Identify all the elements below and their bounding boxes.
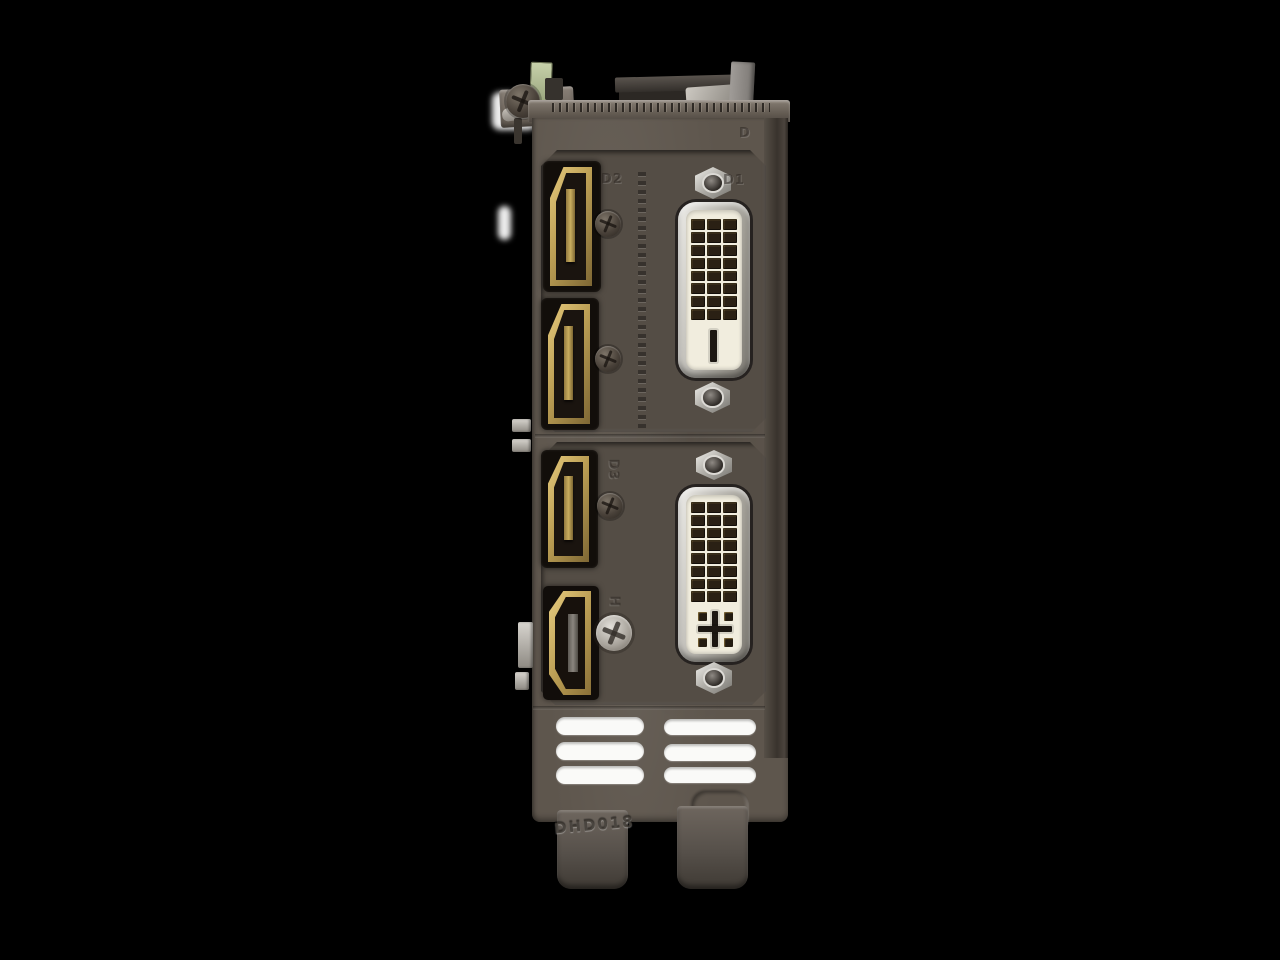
- vent-slot: [556, 766, 644, 784]
- dvi-pin: [691, 515, 705, 526]
- bracket-screw: [595, 346, 621, 372]
- dvi-analog-blade-h: [698, 626, 732, 632]
- dvi-pin: [691, 502, 705, 513]
- panel-seam: [533, 706, 765, 710]
- edge-pin: [512, 419, 531, 432]
- dvi-analog-pin: [698, 612, 707, 621]
- dvi-pin: [723, 528, 737, 539]
- port-label-h: H: [606, 596, 621, 608]
- displayport-tongue: [564, 476, 573, 540]
- displayport-2: [541, 298, 599, 430]
- displayport-3: [541, 450, 598, 568]
- dvi-analog-pin: [698, 638, 707, 647]
- dvi-pin: [723, 296, 737, 307]
- hdmi-port: [543, 586, 599, 700]
- dvi-pin-grid: [691, 219, 737, 320]
- displayport-tongue: [564, 326, 573, 399]
- dvi-analog-pin: [724, 612, 733, 621]
- displayport-connector-shell: [548, 456, 589, 562]
- dvi-pin: [707, 219, 721, 230]
- dvi-pin: [691, 283, 705, 294]
- dvi-pin: [723, 271, 737, 282]
- edge-pin: [512, 439, 531, 452]
- bracket-screw-silver: [596, 615, 632, 651]
- dvi-pin: [723, 283, 737, 294]
- dvi-pin: [707, 245, 721, 256]
- dvi-pin: [707, 258, 721, 269]
- dvi-pin: [691, 271, 705, 282]
- bracket-right-fold: [764, 118, 788, 758]
- dvi-insert: [686, 210, 742, 370]
- dvi-pin: [707, 579, 721, 590]
- dvi-pin: [691, 591, 705, 602]
- displayport-cavity: [554, 462, 583, 556]
- dvi-pin: [723, 553, 737, 564]
- displayport-connector-shell: [550, 167, 592, 286]
- panel-seam: [535, 434, 765, 438]
- dvi-pin: [723, 579, 737, 590]
- dvi-pin: [691, 232, 705, 243]
- bracket-serrations: [552, 103, 770, 112]
- dvi-pin-grid: [691, 502, 737, 602]
- dvi-pin: [691, 553, 705, 564]
- dvi-pin: [691, 579, 705, 590]
- dvi-pin: [707, 296, 721, 307]
- dvi-pin: [707, 515, 721, 526]
- background-fringe: [498, 206, 511, 240]
- dvi-pin: [723, 258, 737, 269]
- dvi-pin: [723, 591, 737, 602]
- dvi-ground-blade: [710, 330, 717, 362]
- dvi-pin: [707, 566, 721, 577]
- displayport-1: [543, 161, 601, 292]
- port-label-d1: D1: [723, 173, 745, 188]
- dvi-pin: [707, 232, 721, 243]
- dvi-pin: [707, 553, 721, 564]
- dvi-pin: [691, 528, 705, 539]
- dvi-pin: [723, 502, 737, 513]
- hdmi-connector-shell: [549, 591, 591, 695]
- hdmi-tongue: [568, 614, 578, 673]
- retention-clip: [545, 78, 563, 100]
- edge-tab: [515, 672, 529, 690]
- dvi-pin: [691, 258, 705, 269]
- dvi-pin: [723, 540, 737, 551]
- dvi-pin: [723, 232, 737, 243]
- dvi-pin: [723, 515, 737, 526]
- vent-slot: [556, 742, 644, 760]
- vent-slot: [664, 719, 756, 735]
- dvi-d-port: [678, 202, 750, 378]
- dvi-pin: [707, 502, 721, 513]
- dvi-pin: [723, 245, 737, 256]
- dvi-pin: [707, 528, 721, 539]
- dvi-insert: [686, 495, 742, 654]
- dvi-pin: [691, 296, 705, 307]
- dvi-analog-pin: [724, 638, 733, 647]
- dvi-pin: [691, 540, 705, 551]
- edge-tab: [518, 622, 533, 668]
- dvi-pin: [723, 219, 737, 230]
- bracket-screw: [595, 211, 621, 237]
- dvi-pin: [691, 309, 705, 320]
- photo-stage: D2 D1 D3 H D DHD018: [0, 0, 1280, 960]
- dvi-pin: [691, 245, 705, 256]
- bracket-screw: [597, 493, 623, 519]
- displayport-tongue: [566, 189, 575, 262]
- dvi-pin: [723, 566, 737, 577]
- dvi-pin: [707, 309, 721, 320]
- dvi-i-port: [678, 487, 750, 662]
- vent-slot: [556, 717, 644, 735]
- hdmi-cavity: [555, 597, 585, 689]
- dvi-pin: [707, 591, 721, 602]
- embossed-dash-column: [638, 172, 646, 428]
- dvi-pin: [707, 271, 721, 282]
- displayport-connector-shell: [548, 304, 590, 424]
- bracket-foot-right: [677, 806, 748, 889]
- screw-shaft: [514, 118, 522, 144]
- dvi-pin: [691, 219, 705, 230]
- vent-slot: [664, 744, 756, 761]
- port-label-d2: D2: [601, 172, 623, 187]
- displayport-cavity: [554, 310, 584, 418]
- dvi-pin: [723, 309, 737, 320]
- dvi-pin: [707, 283, 721, 294]
- vent-slot: [664, 767, 756, 783]
- dvi-pin: [707, 540, 721, 551]
- displayport-cavity: [556, 173, 586, 280]
- port-label-d3: D3: [605, 459, 620, 481]
- corner-mark: D: [739, 126, 751, 141]
- dvi-pin: [691, 566, 705, 577]
